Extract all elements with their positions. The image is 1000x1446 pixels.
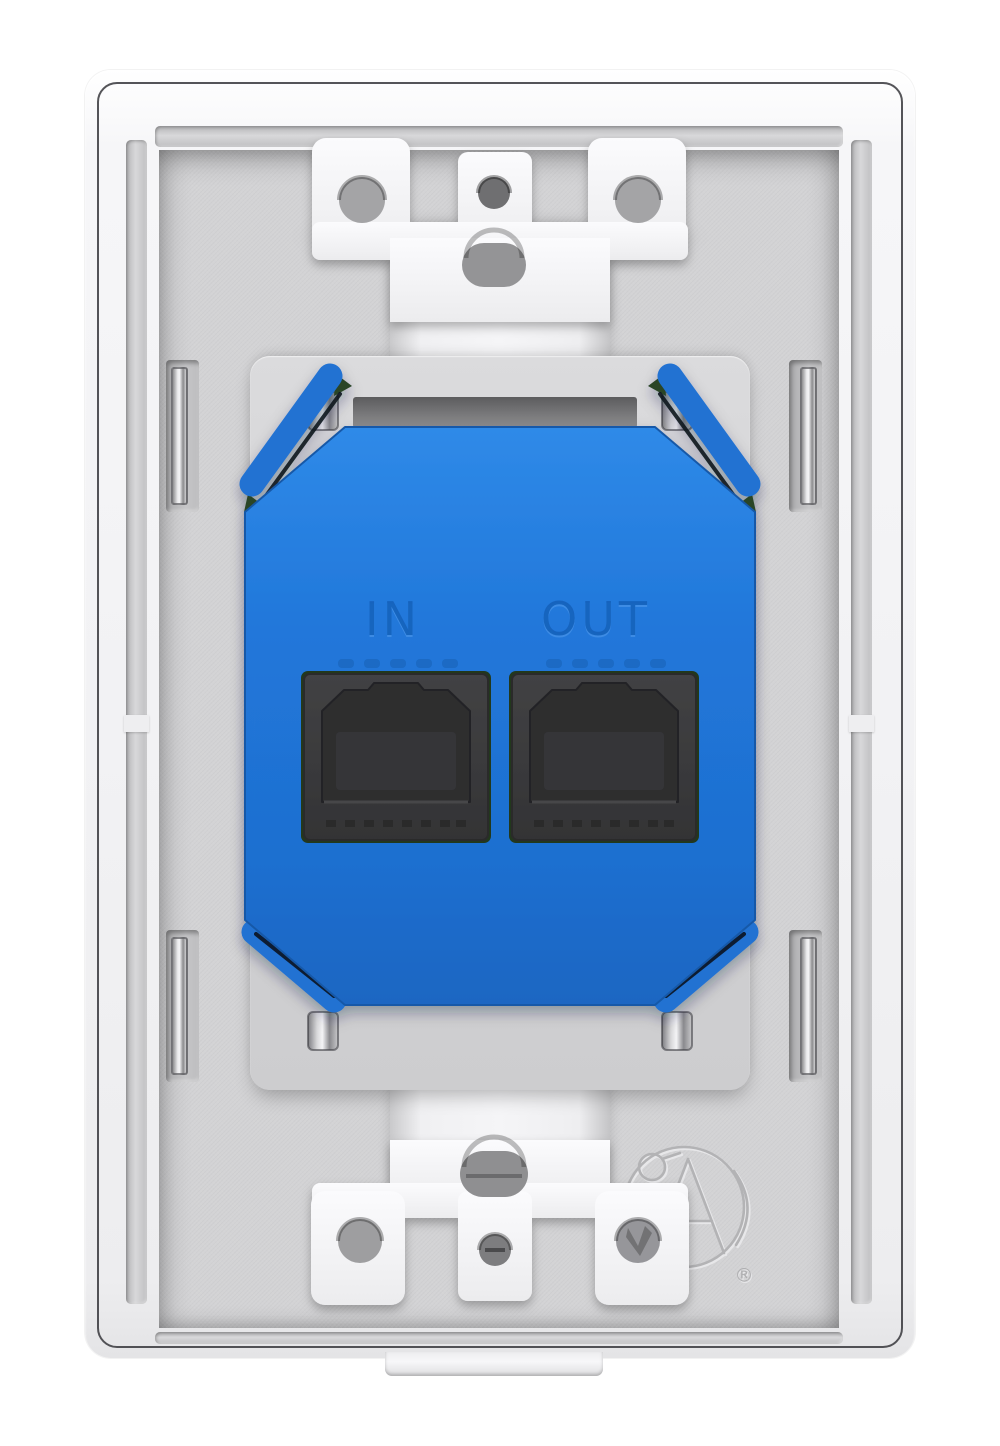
- module-clip-bottom-left: [308, 1012, 338, 1050]
- port-label-out: OUT: [541, 592, 651, 646]
- rj45-jack-in: [301, 671, 491, 843]
- retainer-clip-icon: [800, 937, 817, 1075]
- module-clip-bottom-right: [662, 1012, 692, 1050]
- jack-cavity-floor: [544, 732, 664, 790]
- retainer-clip-icon: [171, 937, 188, 1075]
- retainer-clip-icon: [171, 367, 188, 505]
- mounting-bracket-bottom: [280, 1128, 720, 1348]
- registered-mark: ®: [735, 1265, 754, 1287]
- port-label-in: IN: [365, 592, 421, 646]
- product-image-stage: ® ®: [0, 0, 1000, 1446]
- wall-plate: ® ®: [85, 70, 915, 1358]
- groove-bridge-left: [124, 715, 149, 732]
- module-canvas: IN IN OUT OUT: [230, 350, 770, 1072]
- retainer-slot-top-right: [789, 360, 822, 512]
- retainer-clip-icon: [800, 367, 817, 505]
- mounting-bracket-top: [280, 118, 720, 348]
- retainer-slot-top-left: [166, 360, 199, 512]
- rj45-jack-out: [509, 671, 699, 843]
- retainer-slot-bottom-right: [789, 930, 822, 1082]
- retainer-slot-bottom-left: [166, 930, 199, 1082]
- bottom-mounting-tab: [385, 1352, 603, 1376]
- keystone-module: IN IN OUT OUT: [244, 374, 756, 1005]
- groove-bridge-right: [849, 715, 874, 732]
- jack-cavity-floor: [336, 732, 456, 790]
- oval-screw-slot-top: [462, 243, 526, 287]
- module-opening-recess: [353, 397, 637, 428]
